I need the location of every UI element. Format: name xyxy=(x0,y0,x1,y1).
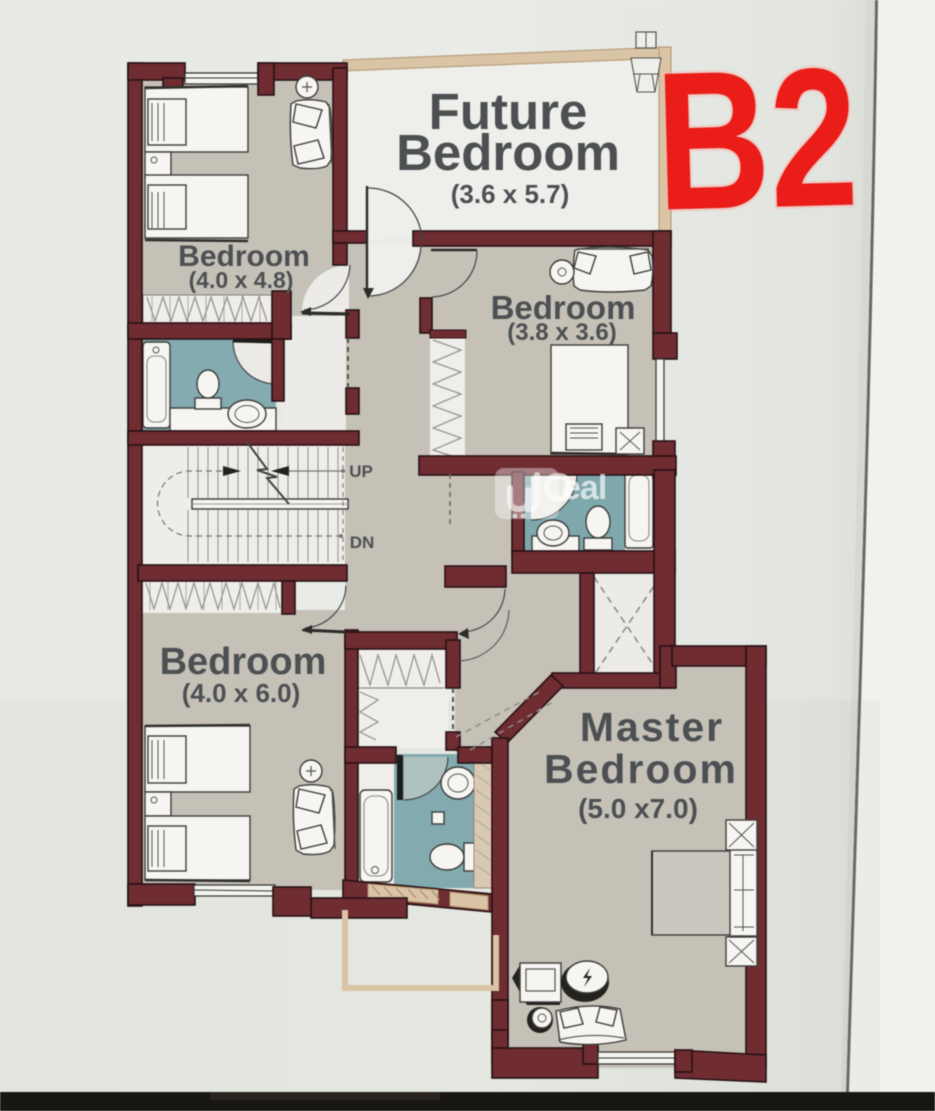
svg-text:(4.0 x 6.0): (4.0 x 6.0) xyxy=(182,678,301,708)
svg-text:(5.0 x7.0): (5.0 x7.0) xyxy=(578,793,698,824)
svg-text:UP: UP xyxy=(349,462,373,481)
svg-text:(4.0 x 4.8): (4.0 x 4.8) xyxy=(189,267,294,293)
svg-text:Bedroom: Bedroom xyxy=(160,641,327,683)
svg-text:B2: B2 xyxy=(653,27,860,252)
svg-text:(3.8 x 3.6): (3.8 x 3.6) xyxy=(507,319,616,346)
svg-text:DN: DN xyxy=(350,533,375,552)
svg-text:Bedroom: Bedroom xyxy=(544,746,738,792)
svg-text:eal: eal xyxy=(562,469,606,507)
svg-text:(3.6 x 5.7): (3.6 x 5.7) xyxy=(451,179,570,209)
svg-text:Bedroom: Bedroom xyxy=(396,124,620,181)
svg-text:Master: Master xyxy=(580,704,724,750)
